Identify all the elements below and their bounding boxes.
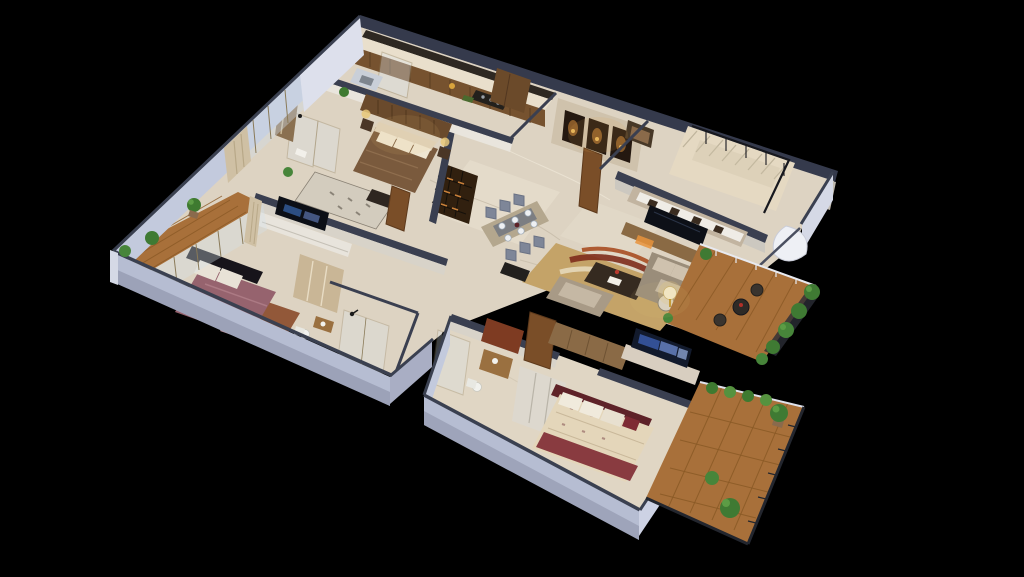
floorplan-render: 3D isometric apartment floor plan cutawa… [0,0,1024,577]
bistro-plant-4 [766,340,780,354]
left-corner-post [110,250,118,285]
bistro-plant-3 [778,322,794,338]
leftedge-plant-top [339,87,349,97]
master-bath-glass-2 [313,121,340,173]
bistro-plant-hl-1 [806,286,812,292]
deck-planter-row-1 [706,382,718,394]
deck-plant-3 [705,471,719,485]
lamp-right-glow [441,138,450,147]
coffee-table-flowers [615,270,619,274]
bath1-sink [321,322,326,327]
dining-chair-2 [500,200,510,212]
deck-plant-1 [770,404,788,422]
leftbalcony-plant-2 [145,231,159,245]
bath1-shower-head-dot [350,312,354,316]
bistro-plant-1 [804,284,820,300]
bath2-sink [492,358,498,364]
bistro-chair-1 [714,314,726,326]
dining-plate-6 [531,221,537,227]
bistro-plant-hl-2 [780,324,786,330]
deck-plant-2-hl [722,499,730,507]
dining-plate-1 [499,223,505,229]
deck-planter-row-4 [760,394,772,406]
deck-plant-1-hl [773,406,780,413]
lamp-left-glow [362,110,371,119]
leftbalcony-plant-3 [119,245,131,257]
bistro-plant-5 [756,353,768,365]
dining-chair-3 [514,194,524,206]
dining-plate-4 [505,235,511,241]
dining-chair-4 [534,236,544,248]
dining-centerpiece [515,223,520,228]
deck-planter-row-3 [742,390,754,402]
deck-planter-row-2 [724,386,736,398]
kitchen-bowl-yellow [449,83,455,89]
glow-foyer [568,117,628,153]
glow-living [630,282,690,318]
leftedge-plant-mid [283,167,293,177]
bistro-plant-2 [791,303,807,319]
floorplan-canvas: 3D isometric apartment floor plan cutawa… [0,0,1024,577]
dining-chair-6 [506,249,516,261]
master-shower-head [298,114,302,118]
leftbalcony-plant-1-hl [188,199,194,205]
dining-plate-2 [512,217,518,223]
dining-plate-5 [518,228,524,234]
bistro-pot-plant-top [700,248,712,260]
dining-chair-1 [486,207,496,219]
dining-plate-3 [525,210,531,216]
bistro-table-flower [739,303,743,307]
stove-burner-1 [481,95,484,98]
glow-master [370,115,440,155]
bistro-chair-2 [751,284,763,296]
dining-chair-5 [520,242,530,254]
